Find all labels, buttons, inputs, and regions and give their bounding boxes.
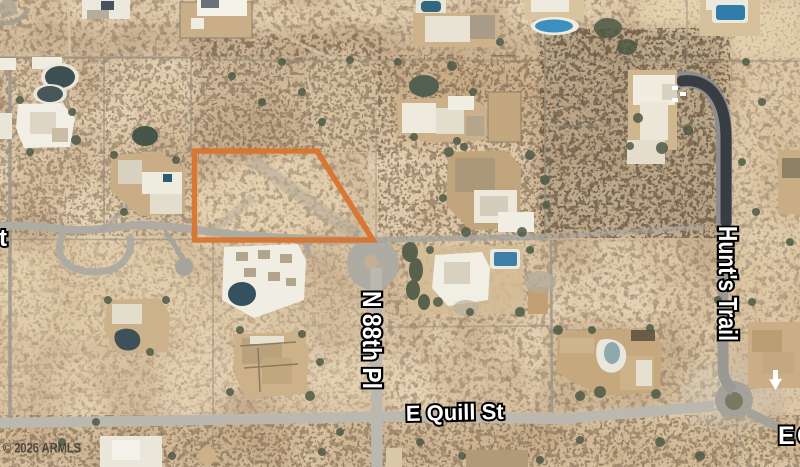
svg-text:N 88th Pl: N 88th Pl: [357, 291, 387, 389]
svg-text:E: E: [778, 422, 795, 450]
svg-text:© 2026 ARMLS: © 2026 ARMLS: [3, 441, 81, 456]
svg-text:Hunt's Trail: Hunt's Trail: [713, 226, 743, 341]
svg-text:t: t: [0, 225, 7, 252]
svg-text:E Quill St: E Quill St: [406, 399, 505, 426]
